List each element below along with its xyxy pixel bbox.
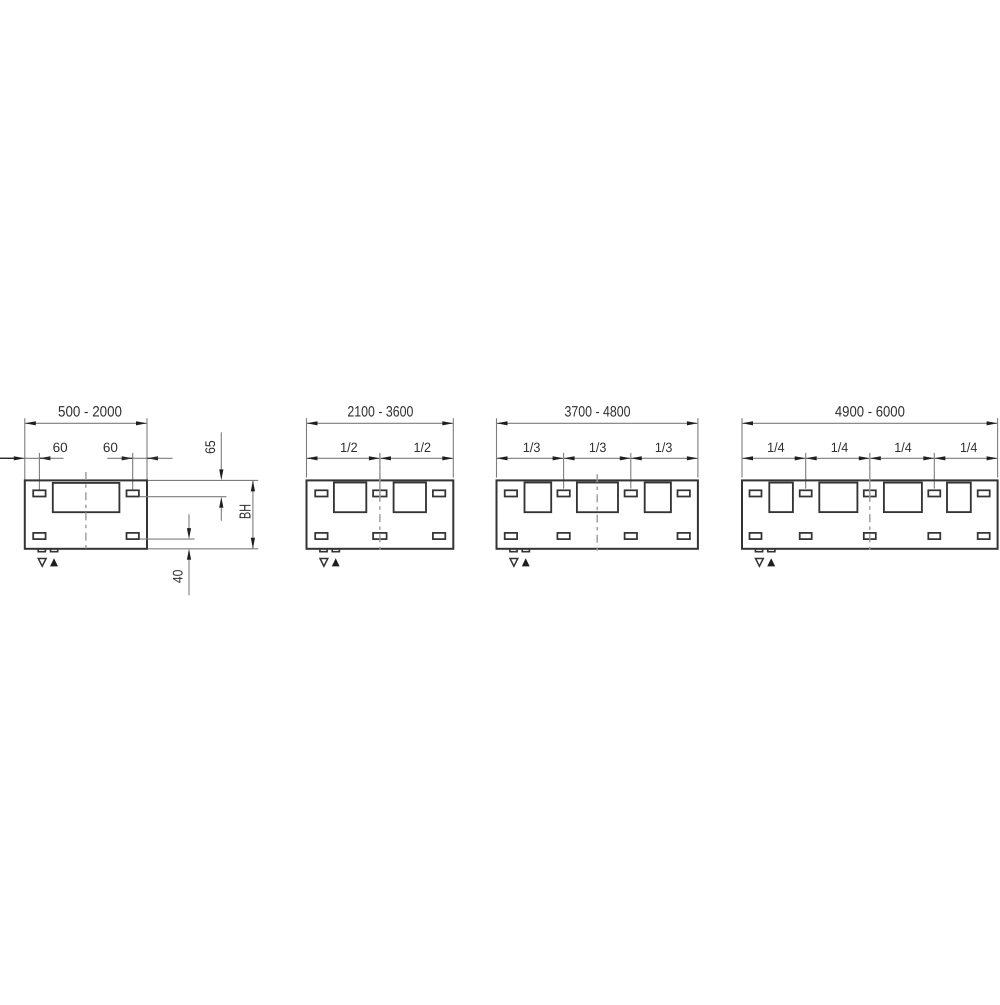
svg-text:1/4: 1/4: [831, 440, 849, 455]
svg-text:1/4: 1/4: [767, 440, 785, 455]
svg-text:1/4: 1/4: [960, 440, 978, 455]
svg-text:1/3: 1/3: [655, 440, 673, 455]
svg-text:60: 60: [53, 440, 68, 455]
svg-text:500 - 2000: 500 - 2000: [58, 403, 122, 420]
svg-text:4900 - 6000: 4900 - 6000: [835, 403, 905, 420]
svg-text:65: 65: [202, 440, 218, 454]
svg-text:60: 60: [103, 440, 118, 455]
svg-text:1/4: 1/4: [894, 440, 912, 455]
svg-text:2100 - 3600: 2100 - 3600: [347, 403, 413, 420]
svg-text:1/2: 1/2: [414, 440, 432, 455]
svg-text:1/3: 1/3: [523, 440, 541, 455]
svg-text:1/2: 1/2: [340, 440, 358, 455]
svg-text:1/3: 1/3: [589, 440, 607, 455]
svg-text:40: 40: [170, 569, 186, 583]
svg-text:BH: BH: [238, 504, 255, 519]
svg-text:3700 - 4800: 3700 - 4800: [565, 403, 631, 420]
